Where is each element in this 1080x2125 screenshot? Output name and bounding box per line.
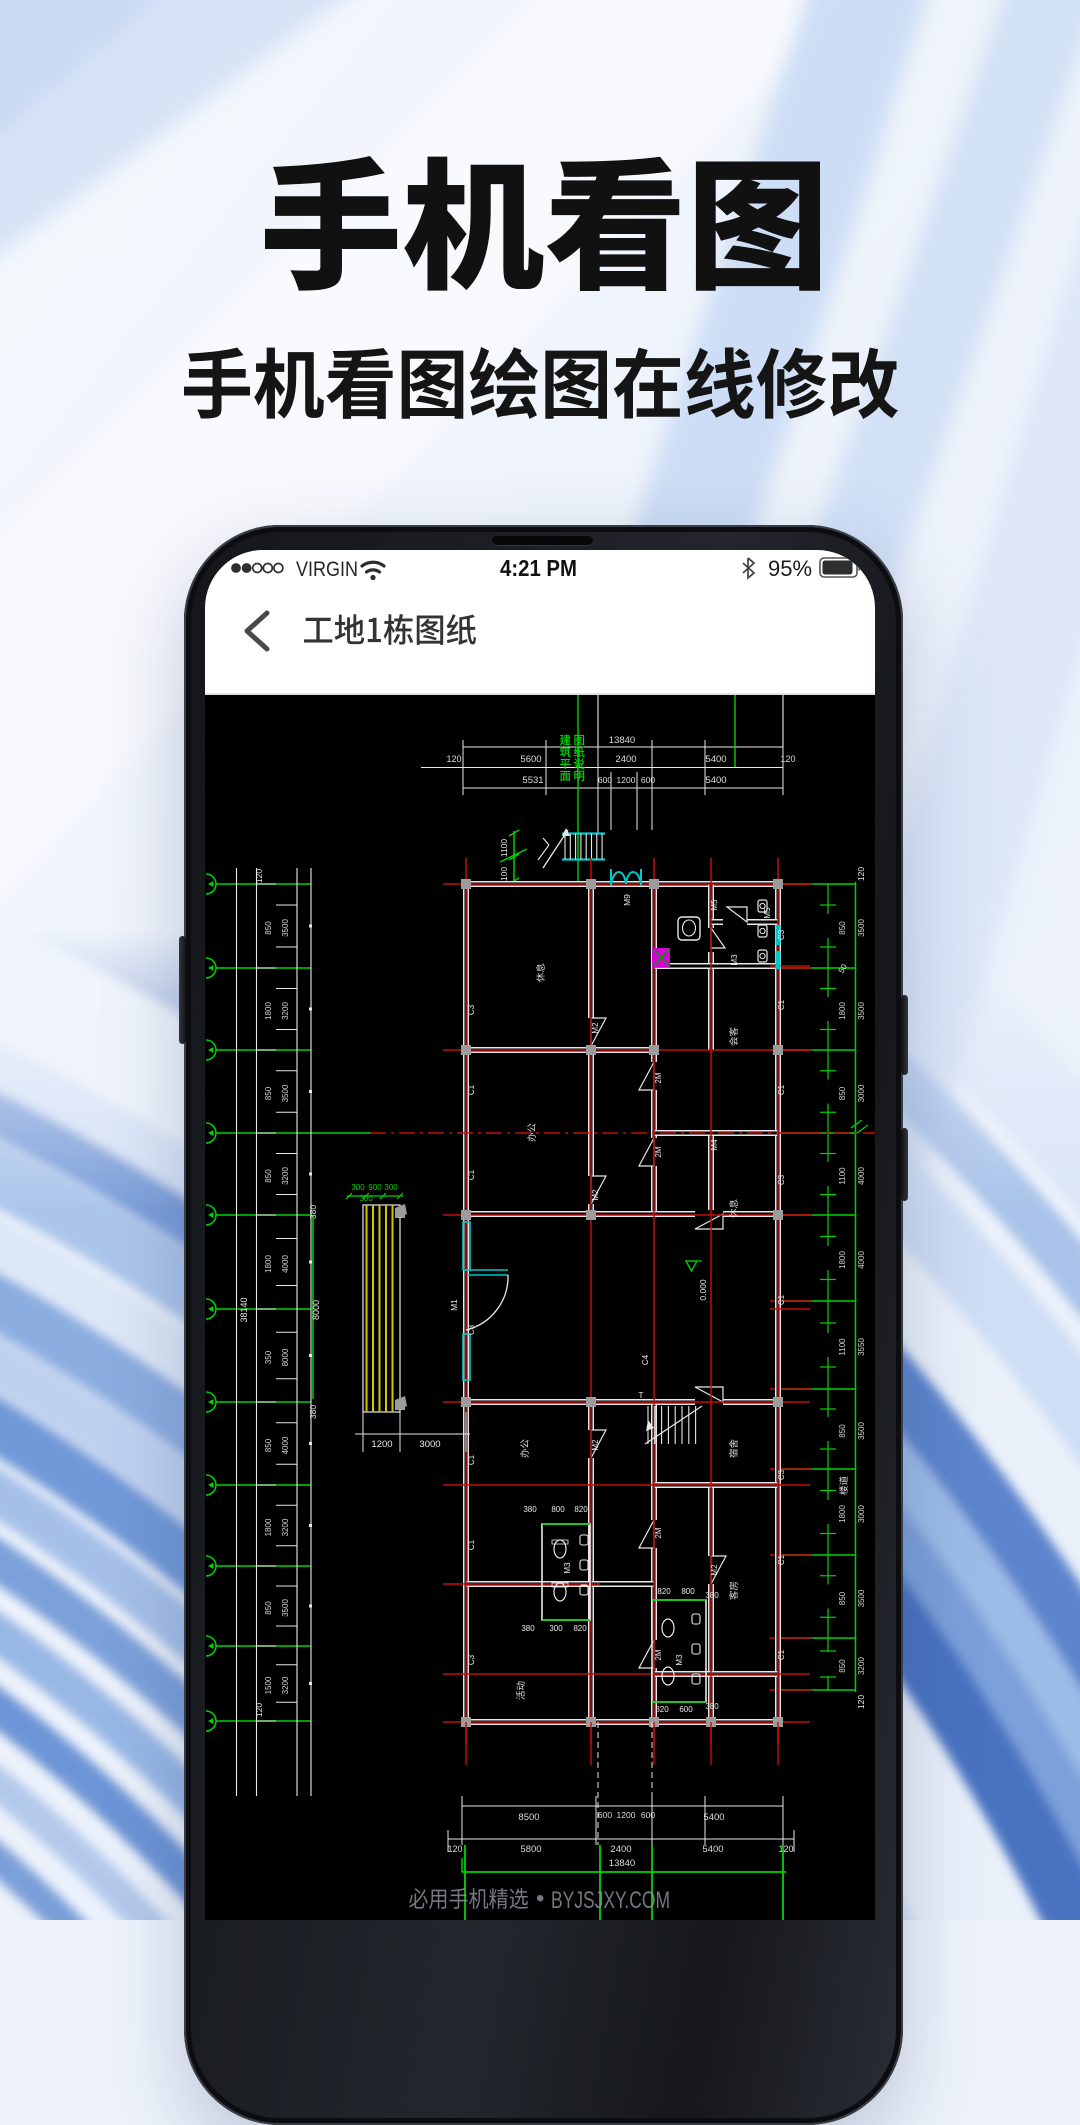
- svg-text:8000: 8000: [281, 1348, 290, 1366]
- svg-text:1100: 1100: [838, 1167, 847, 1185]
- svg-text:5531: 5531: [522, 775, 543, 786]
- svg-text:3500: 3500: [281, 1084, 290, 1102]
- svg-text:380: 380: [523, 1505, 537, 1514]
- svg-text:C3: C3: [777, 929, 786, 940]
- svg-text:850: 850: [264, 1601, 273, 1615]
- svg-text:380: 380: [521, 1624, 535, 1633]
- svg-text:8000: 8000: [311, 1300, 321, 1320]
- svg-text:C4: C4: [641, 1354, 650, 1365]
- svg-text:300: 300: [549, 1624, 563, 1633]
- svg-text:M3: M3: [675, 1654, 684, 1666]
- svg-text:120: 120: [780, 754, 795, 764]
- svg-text:M2: M2: [591, 1022, 600, 1034]
- svg-text:820: 820: [655, 1705, 669, 1714]
- svg-text:850: 850: [838, 1086, 847, 1100]
- svg-text:1500: 1500: [264, 1676, 273, 1694]
- svg-text:380: 380: [705, 1591, 719, 1600]
- svg-text:2400: 2400: [610, 1844, 631, 1855]
- svg-text:1800: 1800: [264, 1518, 273, 1536]
- svg-text:C1: C1: [467, 1084, 476, 1095]
- svg-text:M1: M1: [449, 1299, 459, 1311]
- svg-text:C1: C1: [777, 1649, 786, 1660]
- svg-text:3500: 3500: [857, 1422, 866, 1440]
- svg-text:1200: 1200: [371, 1439, 392, 1450]
- svg-text:4000: 4000: [281, 1436, 290, 1454]
- svg-text:120: 120: [447, 1844, 462, 1854]
- svg-text:380: 380: [308, 1405, 318, 1419]
- svg-text:850: 850: [838, 1424, 847, 1438]
- svg-text:3200: 3200: [281, 1167, 290, 1185]
- svg-text:600: 600: [598, 1810, 612, 1820]
- svg-text:820: 820: [657, 1587, 671, 1596]
- svg-text:3500: 3500: [281, 919, 290, 937]
- svg-text:T: T: [638, 1390, 643, 1400]
- svg-text:120: 120: [778, 1844, 793, 1854]
- svg-text:3500: 3500: [857, 1589, 866, 1607]
- svg-text:120: 120: [446, 754, 461, 764]
- svg-text:M5: M5: [710, 899, 719, 911]
- svg-text:120: 120: [856, 867, 866, 881]
- svg-text:C3: C3: [467, 1654, 476, 1665]
- svg-text:M3: M3: [730, 954, 739, 966]
- svg-text:C3: C3: [467, 1004, 476, 1015]
- svg-text:380: 380: [308, 1205, 318, 1219]
- svg-text:600: 600: [598, 775, 612, 785]
- svg-text:C3: C3: [777, 1469, 786, 1480]
- svg-text:900: 900: [368, 1183, 382, 1192]
- svg-text:4000: 4000: [857, 1167, 866, 1185]
- svg-text:1800: 1800: [838, 1505, 847, 1523]
- svg-text:8500: 8500: [518, 1812, 539, 1823]
- svg-text:300: 300: [359, 1194, 373, 1203]
- svg-text:1100: 1100: [838, 1338, 847, 1356]
- svg-text:2M: 2M: [654, 1527, 663, 1538]
- svg-text:3500: 3500: [857, 1002, 866, 1020]
- svg-text:M9: M9: [622, 894, 632, 906]
- svg-text:3000: 3000: [857, 1505, 866, 1523]
- svg-text:350: 350: [264, 1350, 273, 1364]
- svg-text:120: 120: [254, 869, 264, 883]
- svg-text:820: 820: [573, 1624, 587, 1633]
- svg-text:C3: C3: [467, 1324, 476, 1335]
- svg-text:4000: 4000: [857, 1251, 866, 1269]
- svg-text:3200: 3200: [281, 1518, 290, 1536]
- svg-text:1800: 1800: [838, 1251, 847, 1269]
- svg-text:M4: M4: [710, 1139, 719, 1151]
- svg-text:5400: 5400: [703, 1812, 724, 1823]
- svg-text:850: 850: [838, 1659, 847, 1673]
- svg-text:1800: 1800: [264, 1255, 273, 1273]
- svg-text:850: 850: [264, 1086, 273, 1100]
- svg-text:3500: 3500: [281, 1599, 290, 1617]
- svg-text:5800: 5800: [520, 1844, 541, 1855]
- svg-text:2M: 2M: [654, 1072, 663, 1083]
- svg-text:120: 120: [856, 1695, 866, 1709]
- svg-text:300: 300: [384, 1183, 398, 1192]
- svg-text:3000: 3000: [419, 1439, 440, 1450]
- svg-text:C1: C1: [777, 1084, 786, 1095]
- svg-text:600: 600: [641, 775, 655, 785]
- svg-text:1800: 1800: [838, 1002, 847, 1020]
- svg-text:5400: 5400: [702, 1844, 723, 1855]
- svg-text:600: 600: [641, 1810, 655, 1820]
- svg-text:C1: C1: [467, 1539, 476, 1550]
- svg-text:2M: 2M: [654, 1649, 663, 1660]
- svg-text:C1: C1: [467, 1169, 476, 1180]
- svg-text:850: 850: [838, 921, 847, 935]
- svg-text:C1: C1: [777, 1294, 786, 1305]
- svg-text:C1: C1: [777, 1554, 786, 1565]
- svg-text:3500: 3500: [857, 919, 866, 937]
- svg-text:120: 120: [254, 1703, 264, 1717]
- svg-text:•: •: [536, 1885, 544, 1912]
- svg-text:1100: 1100: [499, 839, 509, 858]
- svg-text:380: 380: [705, 1702, 719, 1711]
- svg-text:600: 600: [679, 1705, 693, 1714]
- svg-text:2M: 2M: [654, 1146, 663, 1157]
- svg-text:C1: C1: [777, 999, 786, 1010]
- svg-text:M2: M2: [591, 1439, 600, 1451]
- svg-text:5600: 5600: [520, 754, 541, 765]
- svg-text:3000: 3000: [857, 1084, 866, 1102]
- svg-text:850: 850: [838, 1591, 847, 1605]
- svg-text:M2: M2: [710, 1564, 719, 1576]
- svg-text:800: 800: [551, 1505, 565, 1514]
- svg-text:0.000: 0.000: [698, 1279, 708, 1301]
- svg-text:850: 850: [264, 921, 273, 935]
- svg-text:2400: 2400: [615, 754, 636, 765]
- svg-text:850: 850: [264, 1169, 273, 1183]
- svg-text:820: 820: [574, 1505, 588, 1514]
- svg-text:1200: 1200: [617, 775, 636, 785]
- svg-text:850: 850: [264, 1438, 273, 1452]
- svg-text:1800: 1800: [264, 1002, 273, 1020]
- svg-text:M3: M3: [563, 1562, 572, 1574]
- svg-text:3550: 3550: [857, 1338, 866, 1356]
- svg-text:M5: M5: [763, 907, 772, 919]
- svg-text:3200: 3200: [281, 1676, 290, 1694]
- svg-text:C3: C3: [777, 1174, 786, 1185]
- svg-text:5400: 5400: [705, 754, 726, 765]
- svg-text:C1: C1: [467, 1454, 476, 1465]
- svg-text:300: 300: [351, 1183, 365, 1192]
- svg-text:3200: 3200: [857, 1657, 866, 1675]
- svg-text:M2: M2: [591, 1189, 600, 1201]
- svg-text:4000: 4000: [281, 1255, 290, 1273]
- svg-text:3200: 3200: [281, 1002, 290, 1020]
- svg-text:800: 800: [681, 1587, 695, 1596]
- svg-text:1200: 1200: [617, 1810, 636, 1820]
- svg-text:13840: 13840: [609, 735, 635, 746]
- svg-text:5400: 5400: [705, 775, 726, 786]
- svg-text:38140: 38140: [239, 1297, 249, 1322]
- svg-text:BYJSJXY.COM: BYJSJXY.COM: [551, 1887, 670, 1914]
